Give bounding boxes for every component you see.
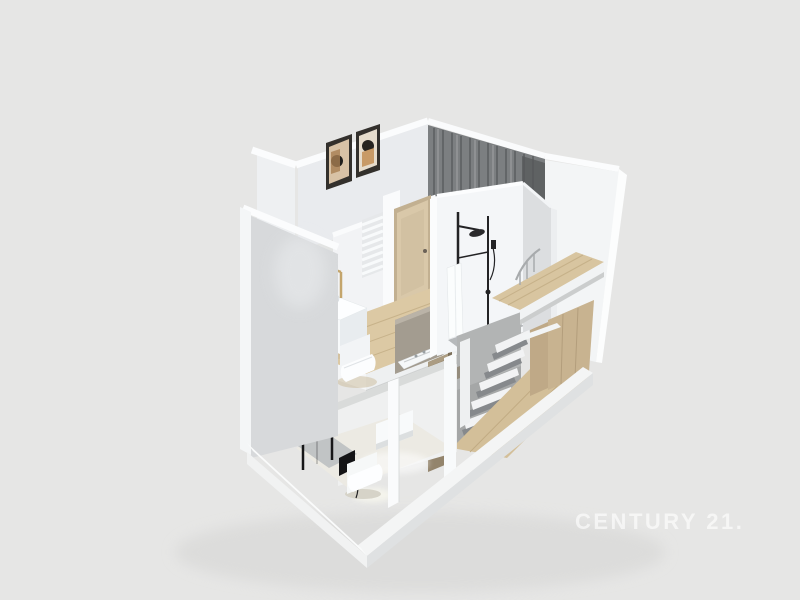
wall-post-2 [444,353,456,480]
hanging-towel [447,263,463,339]
front-left-outer-wall [240,207,338,458]
century21-watermark: CENTURY 21. [575,509,744,535]
floorplan-render-image: CENTURY 21. [0,0,800,600]
towel-radiator [362,212,383,278]
wall-post-1 [388,378,399,508]
door-handle [423,249,427,253]
stair-newel [460,338,470,428]
